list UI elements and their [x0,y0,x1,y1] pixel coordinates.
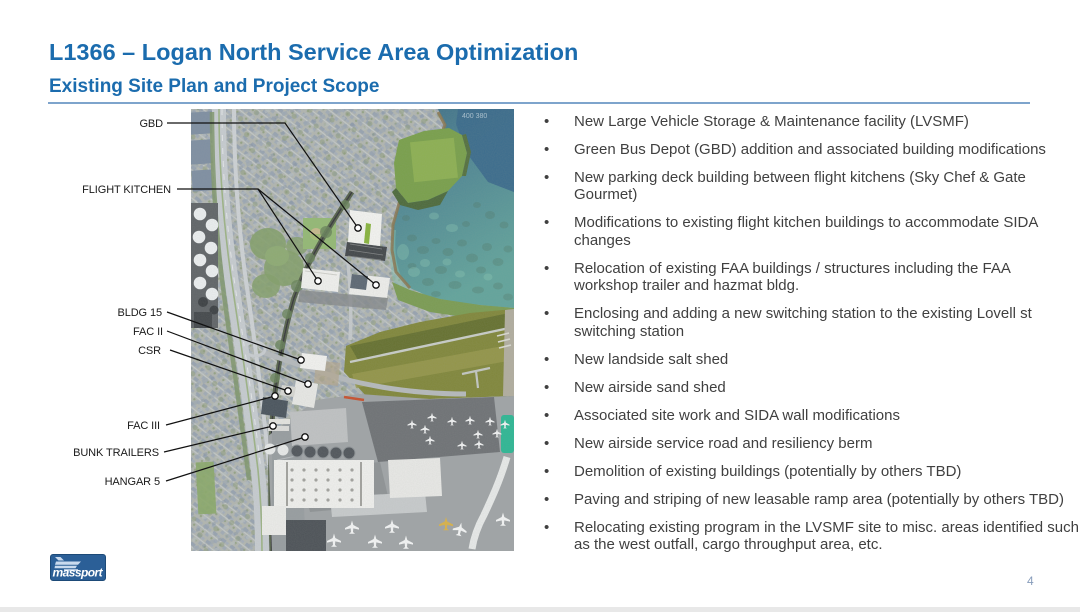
svg-text:BLDG 15: BLDG 15 [117,307,162,319]
svg-text:BUNK TRAILERS: BUNK TRAILERS [73,447,159,459]
svg-text:CSR: CSR [138,345,161,357]
svg-text:FAC III: FAC III [127,420,160,432]
svg-text:massport: massport [53,566,104,580]
svg-text:FAC II: FAC II [133,326,163,338]
svg-text:GBD: GBD [139,118,163,130]
svg-text:FLIGHT KITCHEN: FLIGHT KITCHEN [82,184,171,196]
svg-text:HANGAR 5: HANGAR 5 [105,476,160,488]
